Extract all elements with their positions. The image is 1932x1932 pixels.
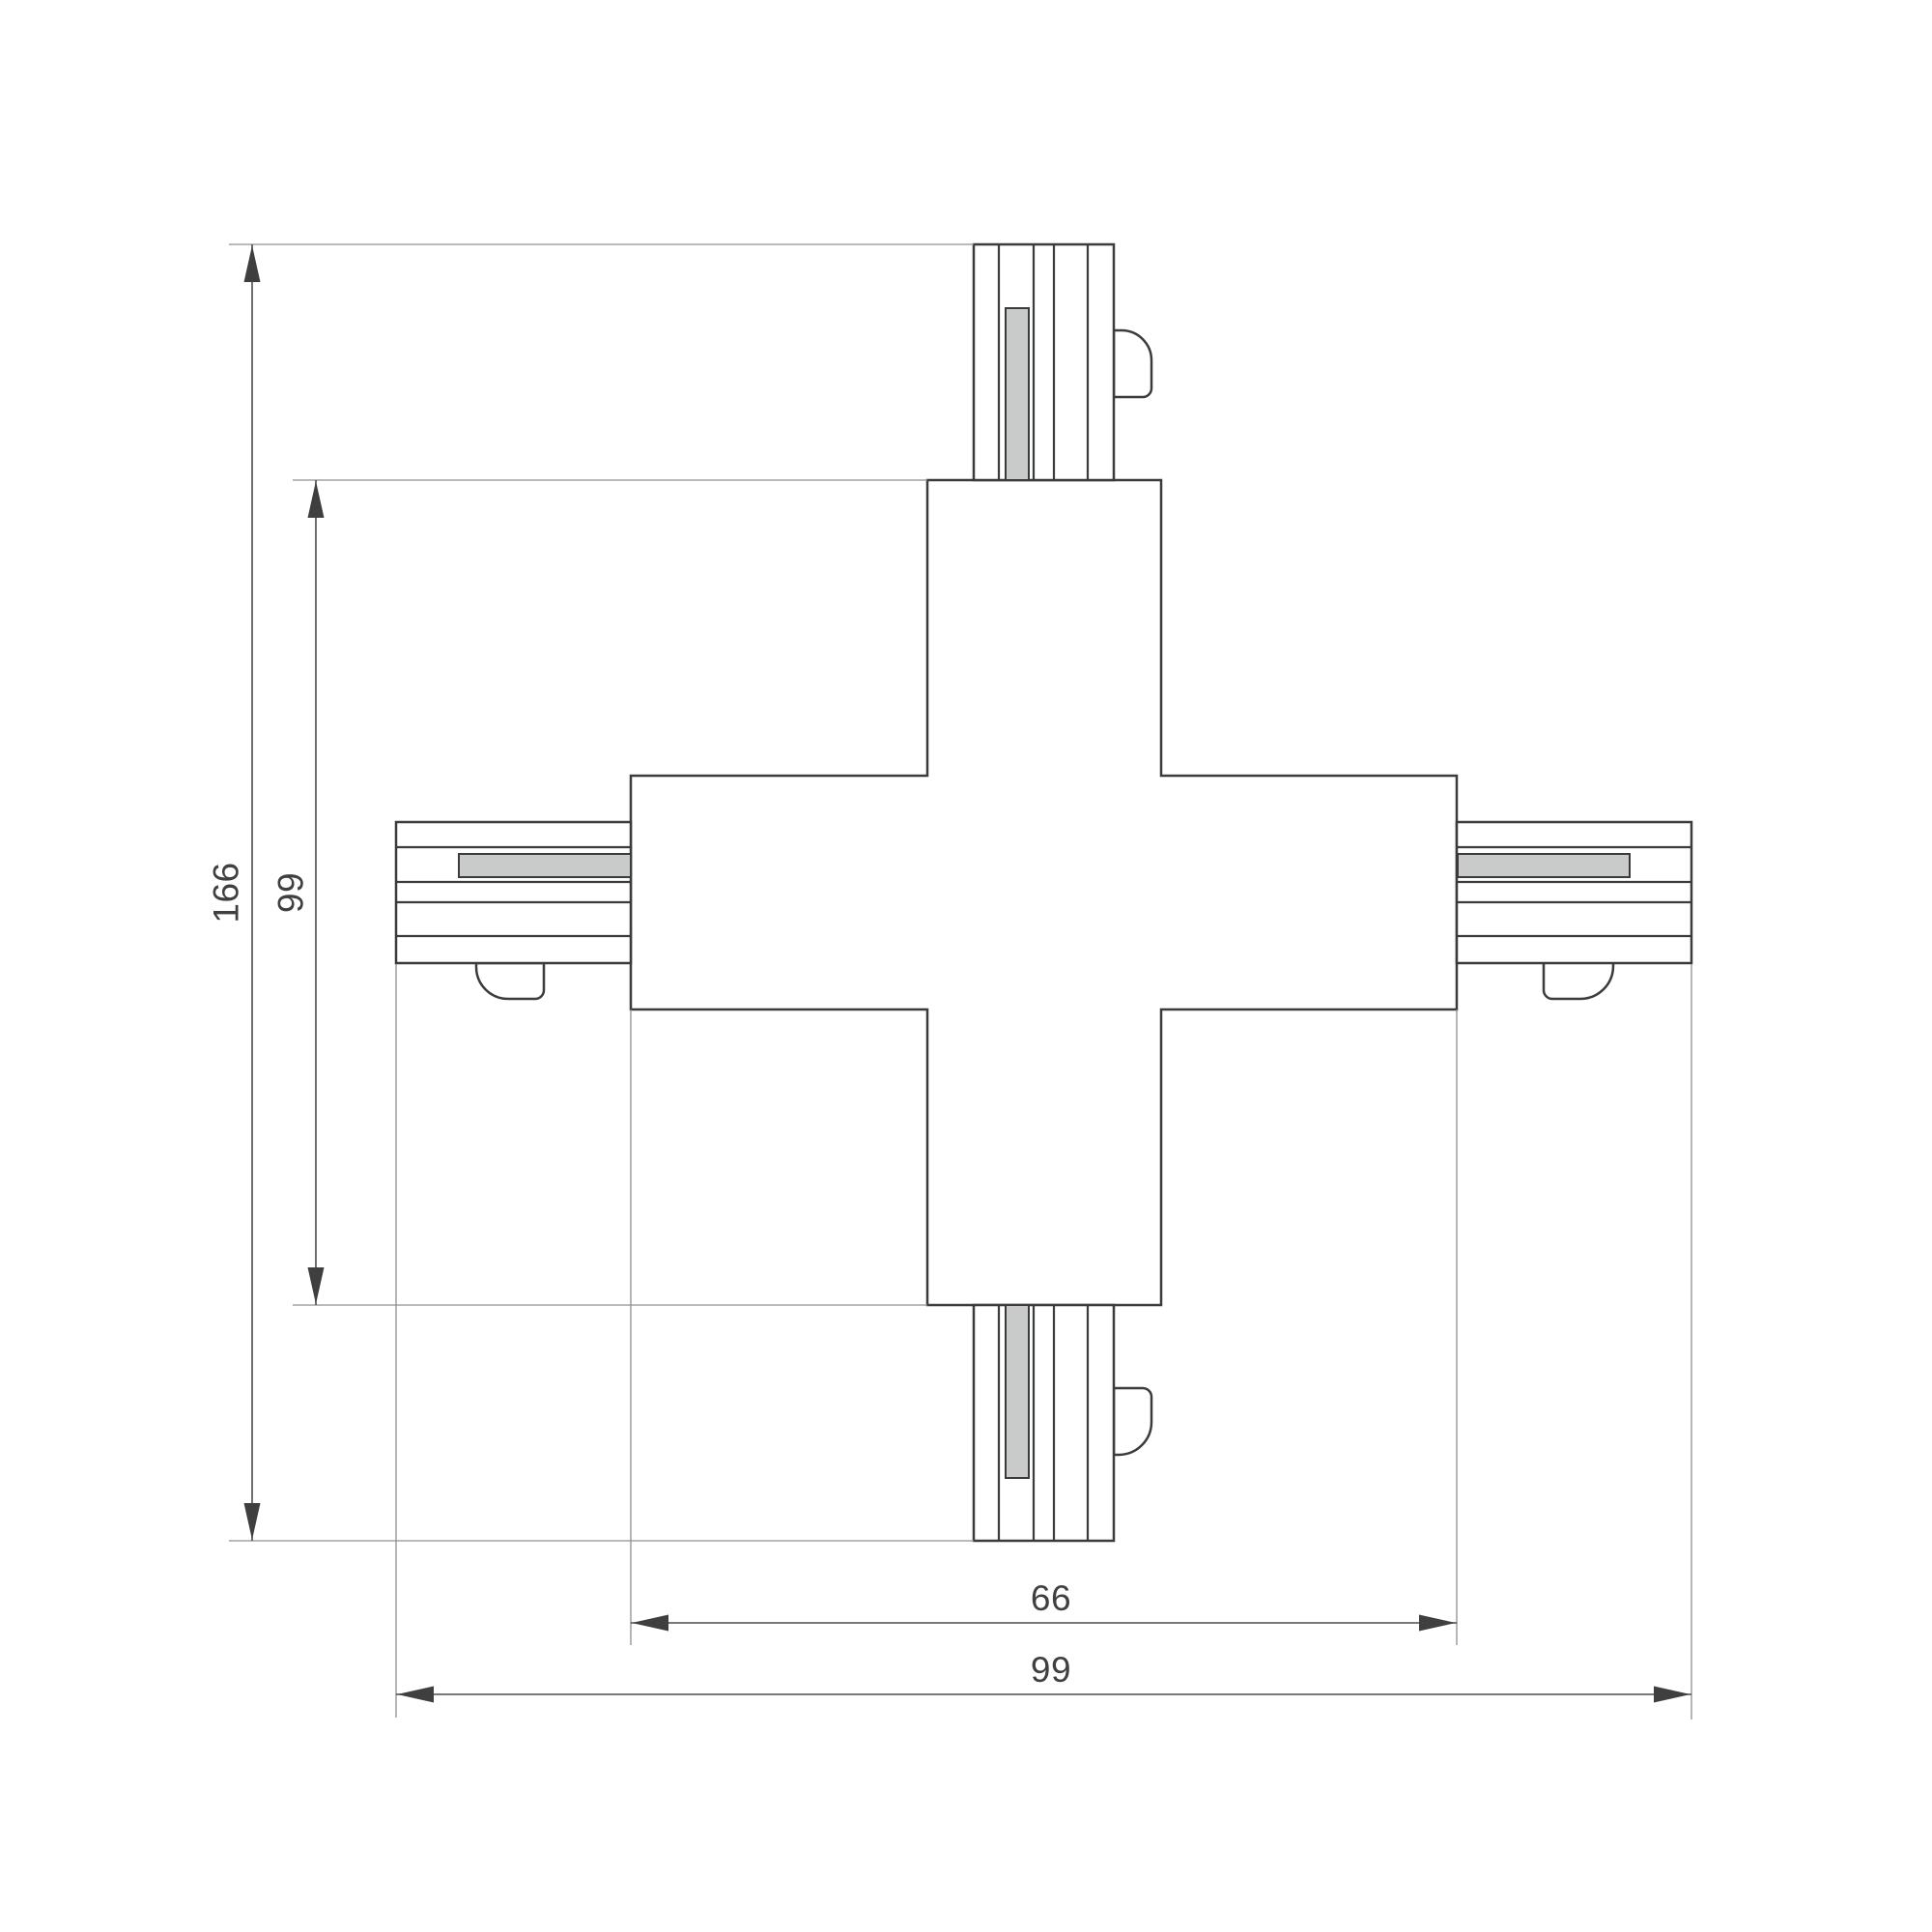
arrowhead-down (244, 1503, 261, 1540)
latch-tab-top (1114, 330, 1151, 397)
connector-bottom-body (974, 1305, 1114, 1541)
dim-label-overall-width: 99 (1031, 1650, 1071, 1690)
cross-body (631, 480, 1457, 1305)
connector-right-body (1457, 822, 1691, 963)
arrowhead-up (244, 245, 261, 282)
connector-top (974, 244, 1151, 480)
connector-top-body (974, 244, 1114, 480)
conductor-bar-bottom (1006, 1305, 1029, 1478)
dim-label-overall-height: 166 (207, 862, 246, 923)
conductor-bar-right (1458, 854, 1630, 877)
latch-tab-left (476, 963, 544, 999)
arrowhead-up (308, 481, 325, 518)
latch-tab-bottom (1114, 1388, 1151, 1455)
conductor-bar-left (459, 854, 631, 877)
arrowhead-left (632, 1615, 668, 1632)
dim-label-body-height: 99 (271, 872, 311, 913)
arrowhead-right (1654, 1687, 1690, 1703)
arrowhead-down (308, 1267, 325, 1304)
connector-right (1457, 822, 1691, 999)
latch-tab-right (1544, 962, 1613, 999)
arrowhead-right (1419, 1615, 1456, 1632)
connector-left-body (396, 822, 631, 963)
connector-bottom (974, 1305, 1151, 1541)
arrowhead-left (397, 1687, 434, 1703)
connector-left (396, 822, 631, 999)
conductor-bar-top (1006, 308, 1029, 480)
dim-label-body-width: 66 (1031, 1578, 1071, 1618)
drawing-canvas: 166 99 66 99 (0, 0, 1932, 1932)
